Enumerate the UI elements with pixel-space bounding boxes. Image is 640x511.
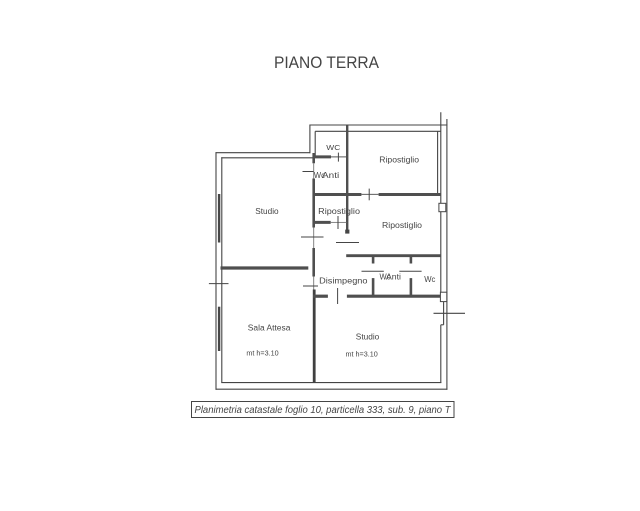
svg-text:Wc: Wc — [424, 275, 435, 284]
svg-text:Ripostiglio: Ripostiglio — [382, 221, 423, 230]
svg-text:Anti: Anti — [386, 273, 401, 282]
svg-text:Ripostiglio: Ripostiglio — [379, 156, 419, 165]
svg-text:Sala Attesa: Sala Attesa — [248, 324, 291, 333]
svg-text:Disimpegno: Disimpegno — [319, 276, 368, 285]
svg-text:Planimetria catastale foglio 1: Planimetria catastale foglio 10, partice… — [195, 405, 452, 416]
svg-text:Anti: Anti — [322, 171, 339, 180]
svg-text:PIANO TERRA: PIANO TERRA — [274, 53, 380, 72]
svg-text:mt h=3.10: mt h=3.10 — [346, 350, 378, 359]
svg-text:mt h=3.10: mt h=3.10 — [246, 348, 278, 357]
svg-text:Studio: Studio — [356, 332, 380, 341]
svg-text:Studio: Studio — [255, 207, 279, 216]
svg-text:Ripostiglio: Ripostiglio — [318, 207, 360, 216]
svg-text:WC: WC — [326, 143, 341, 152]
